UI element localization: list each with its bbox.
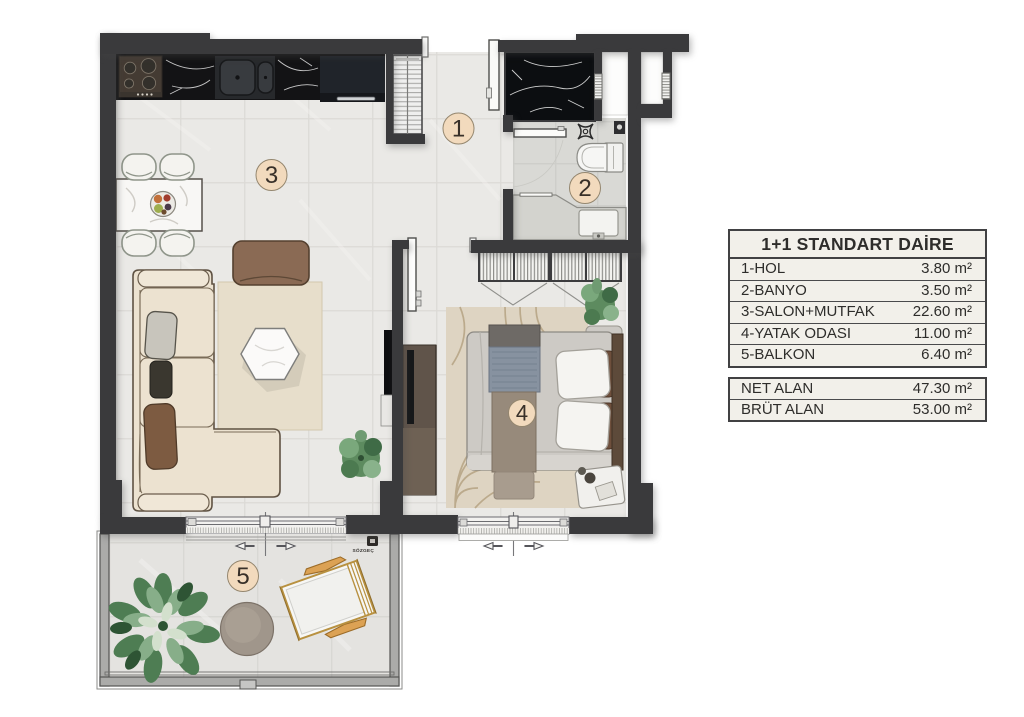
svg-text:1: 1 [452,116,465,143]
svg-text:3: 3 [265,162,278,189]
svg-text:4: 4 [516,401,528,426]
svg-text:SÖZGEÇ: SÖZGEÇ [353,547,375,554]
svg-text:2: 2 [578,175,591,202]
svg-text:5: 5 [236,563,249,590]
